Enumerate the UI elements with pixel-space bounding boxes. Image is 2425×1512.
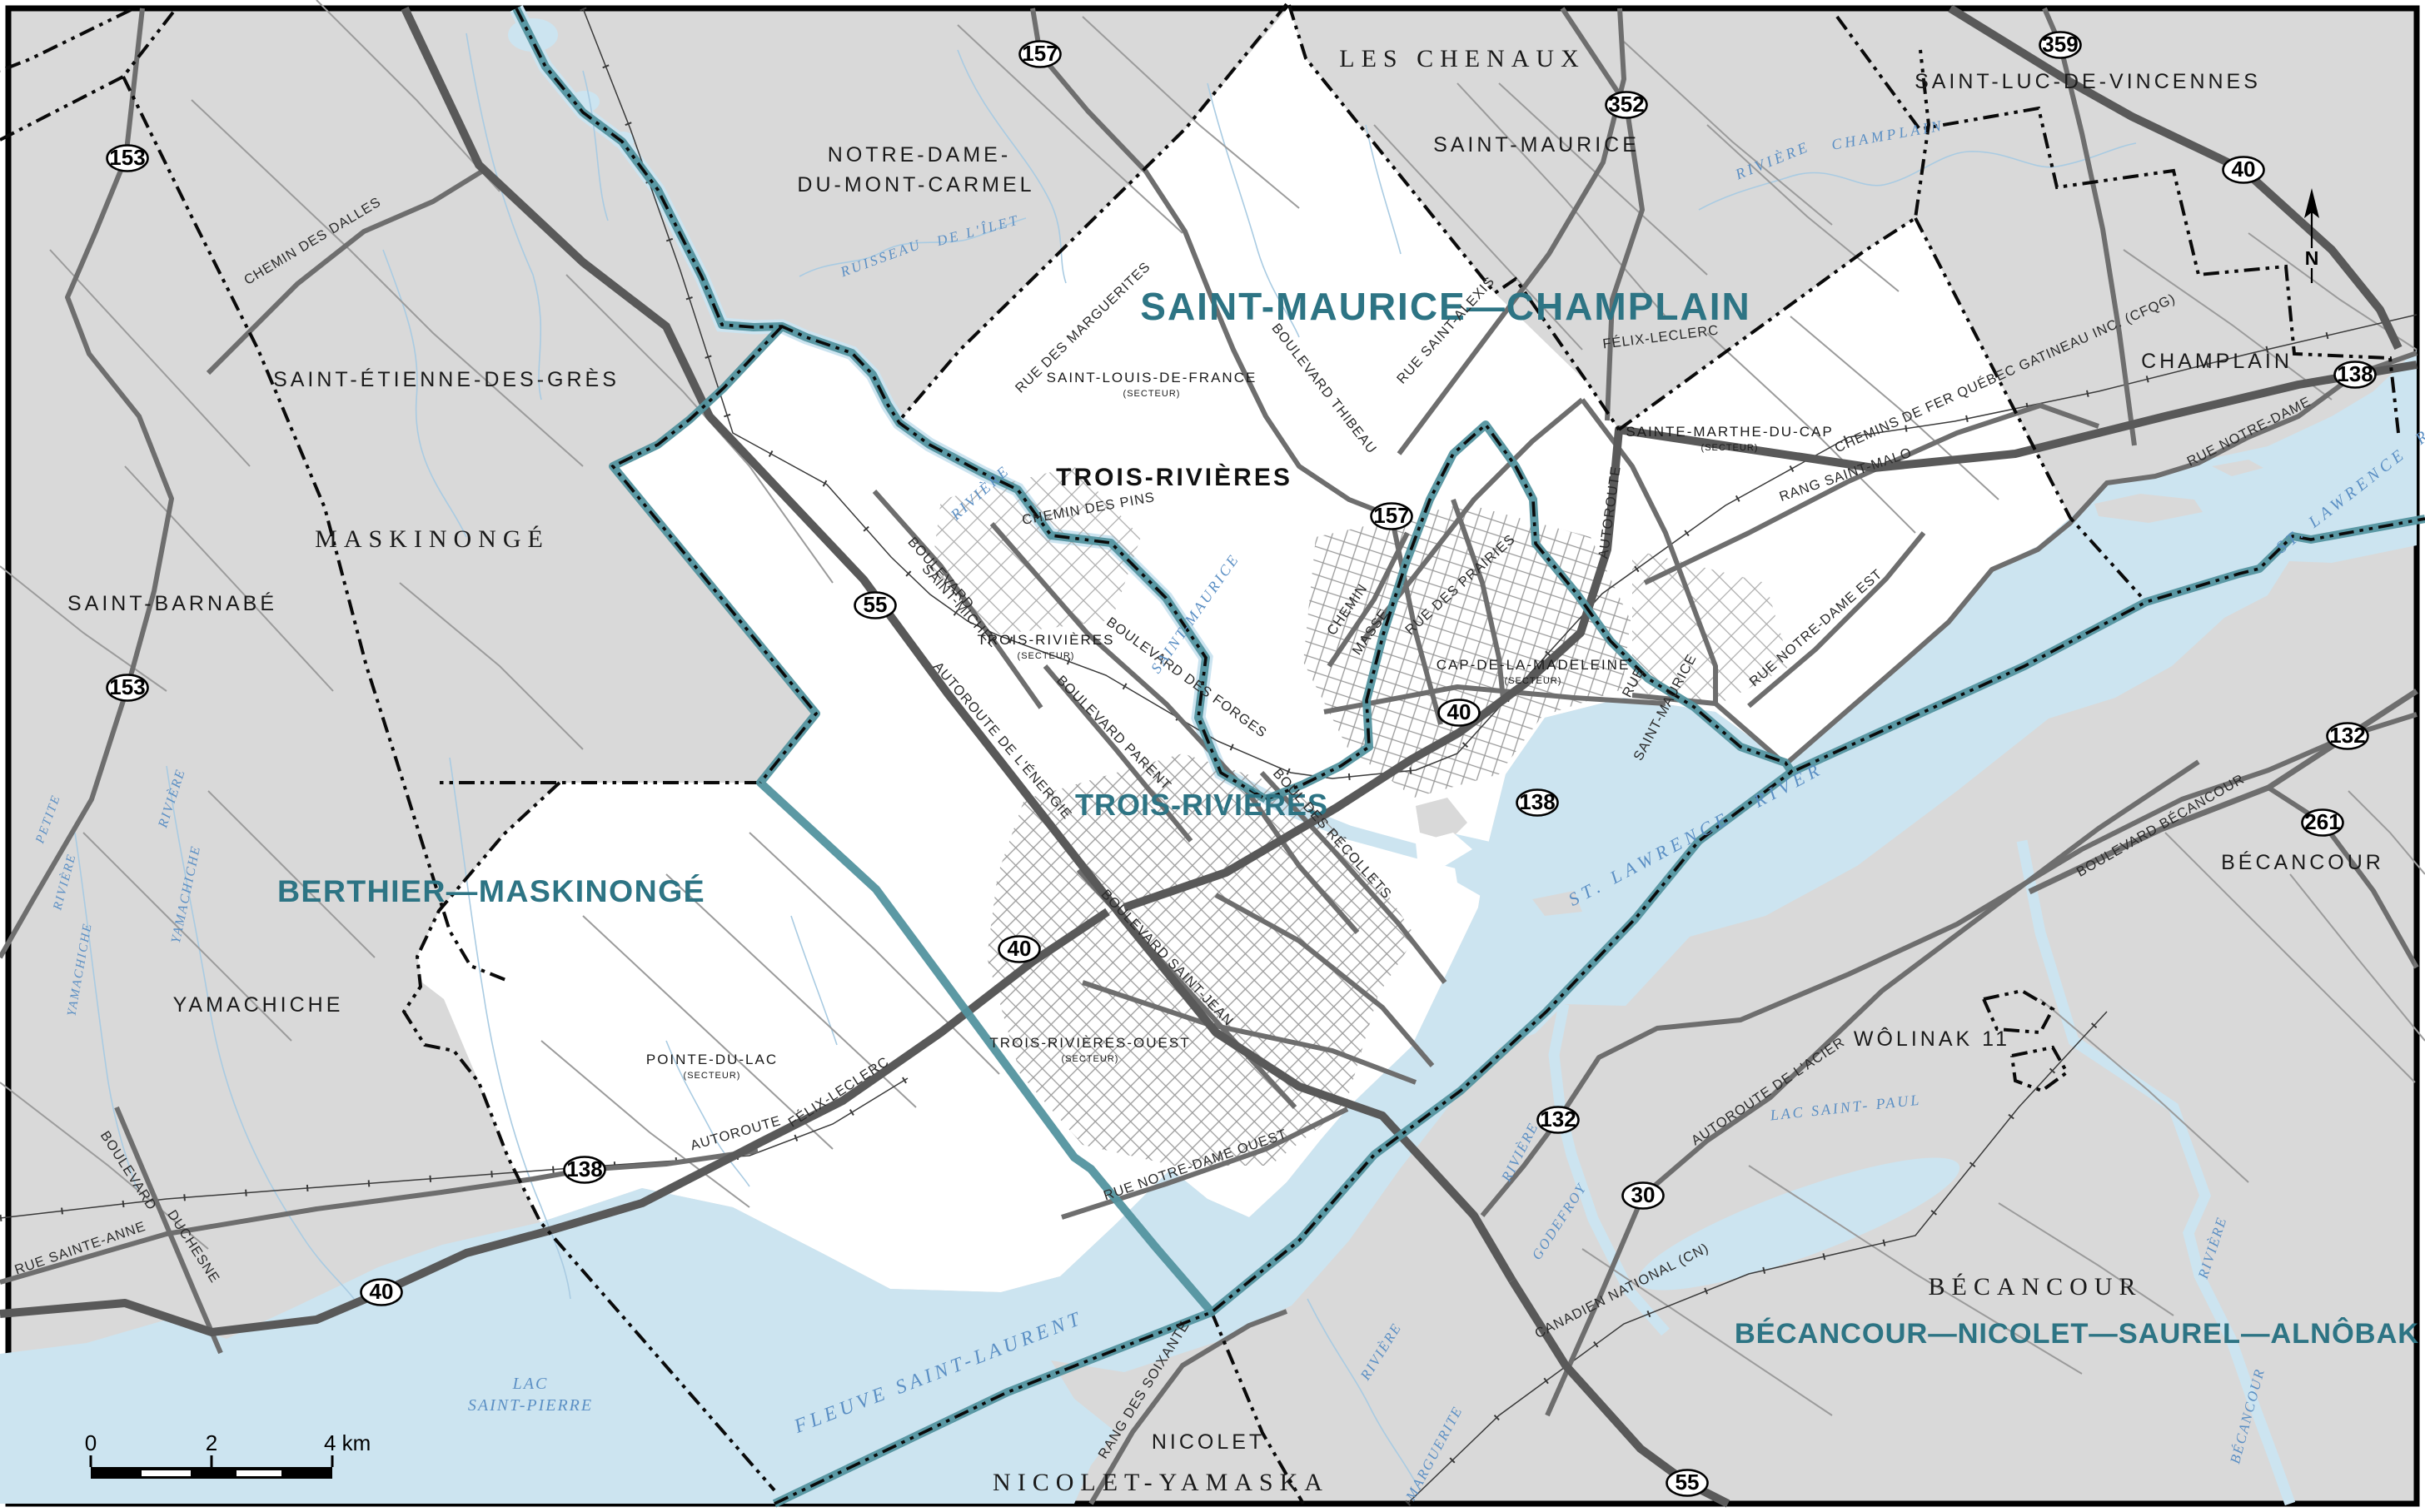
- svg-text:BÉCANCOUR: BÉCANCOUR: [2221, 850, 2384, 874]
- svg-text:LAC: LAC: [512, 1375, 549, 1393]
- svg-text:132: 132: [2329, 723, 2365, 748]
- svg-text:SAINT-LUC-DE-VINCENNES: SAINT-LUC-DE-VINCENNES: [1915, 70, 2261, 93]
- svg-text:NOTRE-DAME-: NOTRE-DAME-: [828, 143, 1011, 167]
- svg-text:(SECTEUR): (SECTEUR): [684, 1071, 741, 1081]
- svg-text:157: 157: [1022, 41, 1058, 66]
- svg-text:153: 153: [109, 145, 145, 170]
- svg-text:261: 261: [2304, 809, 2340, 834]
- svg-text:CHAMPLAIN: CHAMPLAIN: [2141, 350, 2293, 373]
- svg-text:BERTHIER—MASKINONGÉ: BERTHIER—MASKINONGÉ: [277, 873, 705, 908]
- svg-text:138: 138: [2337, 361, 2373, 386]
- svg-text:(SECTEUR): (SECTEUR): [1062, 1054, 1119, 1064]
- svg-text:132: 132: [1540, 1107, 1576, 1132]
- svg-text:N: N: [2305, 247, 2319, 269]
- svg-text:BÉCANCOUR: BÉCANCOUR: [1928, 1273, 2142, 1301]
- svg-text:359: 359: [2042, 32, 2078, 57]
- svg-text:(SECTEUR): (SECTEUR): [1018, 651, 1075, 661]
- svg-text:SAINTE-MARTHE-DU-CAP: SAINTE-MARTHE-DU-CAP: [1626, 424, 1833, 440]
- svg-text:(SECTEUR): (SECTEUR): [1123, 389, 1181, 399]
- svg-text:55: 55: [864, 592, 888, 617]
- svg-text:2: 2: [206, 1430, 217, 1455]
- svg-text:40: 40: [2232, 157, 2256, 182]
- svg-text:LES CHENAUX: LES CHENAUX: [1339, 45, 1586, 72]
- svg-text:NICOLET: NICOLET: [1152, 1430, 1265, 1454]
- svg-text:55: 55: [1676, 1470, 1700, 1495]
- svg-text:WÔLINAK 11: WÔLINAK 11: [1854, 1027, 2010, 1051]
- svg-text:YAMACHICHE: YAMACHICHE: [173, 993, 344, 1017]
- svg-text:NICOLET-YAMASKA: NICOLET-YAMASKA: [993, 1469, 1329, 1496]
- svg-text:TROIS-RIVIÈRES-OUEST: TROIS-RIVIÈRES-OUEST: [989, 1035, 1190, 1051]
- svg-text:4 km: 4 km: [324, 1430, 371, 1455]
- svg-text:SAINT-PIERRE: SAINT-PIERRE: [468, 1396, 593, 1415]
- svg-text:153: 153: [109, 674, 145, 699]
- svg-text:MASKINONGÉ: MASKINONGÉ: [315, 525, 550, 553]
- svg-text:40: 40: [1447, 699, 1471, 724]
- svg-text:(SECTEUR): (SECTEUR): [1701, 443, 1759, 453]
- svg-text:DU-MONT-CARMEL: DU-MONT-CARMEL: [797, 173, 1034, 196]
- svg-text:BÉCANCOUR—NICOLET—SAUREL—ALNÔB: BÉCANCOUR—NICOLET—SAUREL—ALNÔBAK: [1735, 1316, 2419, 1350]
- svg-text:POINTE-DU-LAC: POINTE-DU-LAC: [646, 1052, 778, 1067]
- svg-text:CAP-DE-LA-MADELEINE: CAP-DE-LA-MADELEINE: [1437, 657, 1631, 673]
- svg-text:0: 0: [85, 1430, 97, 1455]
- svg-text:40: 40: [370, 1279, 394, 1304]
- svg-text:30: 30: [1631, 1182, 1656, 1207]
- svg-text:352: 352: [1608, 92, 1644, 117]
- svg-text:SAINT-ÉTIENNE-DES-GRÈS: SAINT-ÉTIENNE-DES-GRÈS: [273, 367, 620, 391]
- svg-text:138: 138: [566, 1156, 602, 1181]
- svg-text:TROIS-RIVIÈRES: TROIS-RIVIÈRES: [1056, 463, 1292, 491]
- svg-text:157: 157: [1373, 503, 1409, 528]
- svg-text:SAINT-LOUIS-DE-FRANCE: SAINT-LOUIS-DE-FRANCE: [1047, 370, 1257, 385]
- svg-text:138: 138: [1519, 789, 1555, 814]
- svg-text:40: 40: [1008, 936, 1032, 961]
- svg-text:SAINT-MAURICE: SAINT-MAURICE: [1433, 133, 1640, 157]
- svg-text:(SECTEUR): (SECTEUR): [1505, 676, 1562, 686]
- svg-text:SAINT-BARNABÉ: SAINT-BARNABÉ: [67, 591, 277, 615]
